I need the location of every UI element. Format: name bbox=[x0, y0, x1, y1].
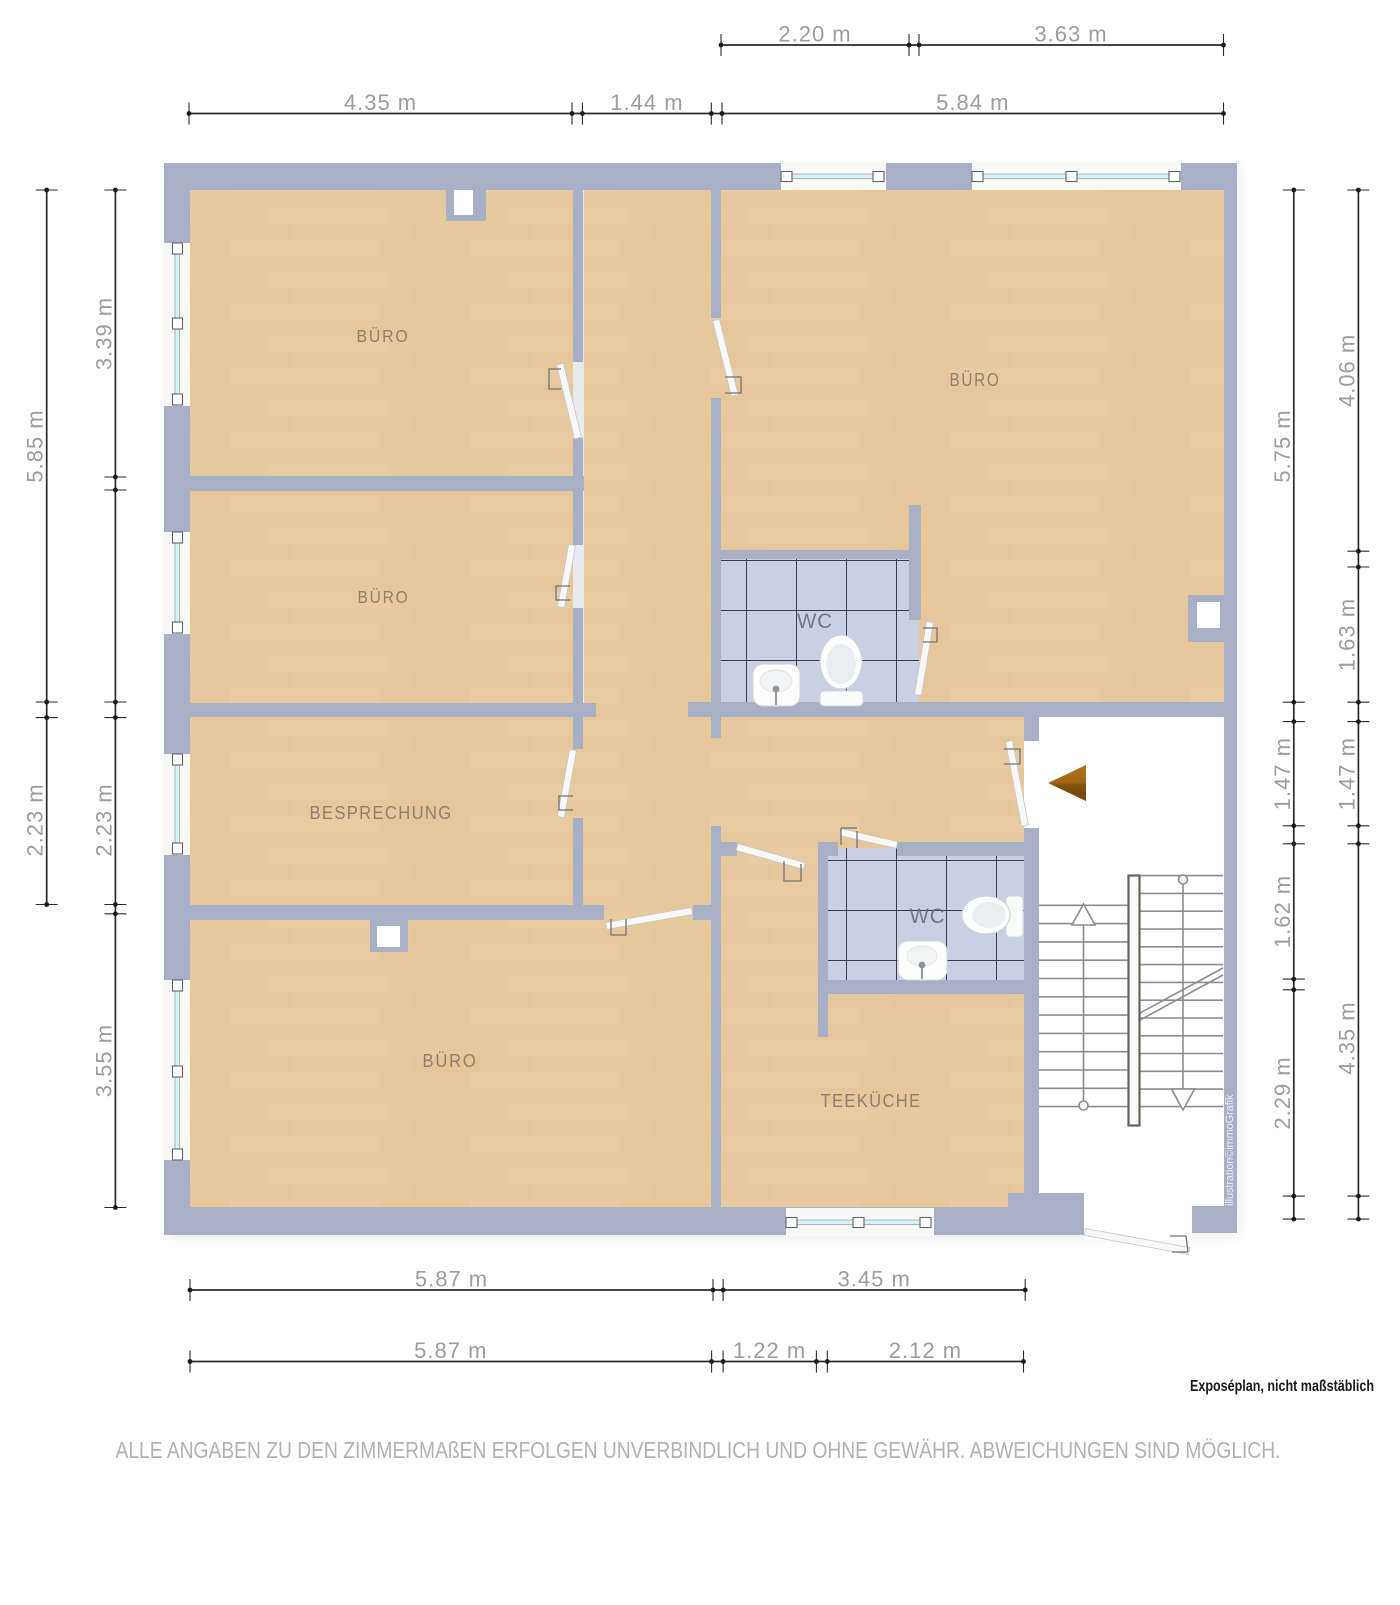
svg-text:2.29 m: 2.29 m bbox=[1270, 1056, 1295, 1129]
svg-text:4.06 m: 4.06 m bbox=[1334, 334, 1359, 407]
svg-text:Exposéplan, nicht maßstäblich: Exposéplan, nicht maßstäblich bbox=[1190, 1378, 1374, 1395]
svg-text:illustration©immoGrafik: illustration©immoGrafik bbox=[1224, 1094, 1236, 1206]
svg-text:2.20 m: 2.20 m bbox=[778, 22, 851, 47]
svg-text:ALLE ANGABEN ZU DEN ZIMMERMAßE: ALLE ANGABEN ZU DEN ZIMMERMAßEN ERFOLGEN… bbox=[116, 1437, 1281, 1463]
svg-text:5.87 m: 5.87 m bbox=[414, 1338, 487, 1363]
svg-text:4.35 m: 4.35 m bbox=[344, 90, 417, 115]
svg-text:5.87 m: 5.87 m bbox=[415, 1267, 488, 1292]
svg-text:4.35 m: 4.35 m bbox=[1334, 1001, 1359, 1074]
svg-text:WC: WC bbox=[910, 905, 946, 928]
svg-text:1.63 m: 1.63 m bbox=[1334, 598, 1359, 671]
svg-text:3.55 m: 3.55 m bbox=[91, 1024, 116, 1097]
svg-text:BÜRO: BÜRO bbox=[950, 370, 1001, 390]
svg-text:5.85 m: 5.85 m bbox=[23, 409, 48, 482]
svg-text:1.62 m: 1.62 m bbox=[1270, 875, 1295, 948]
svg-text:3.39 m: 3.39 m bbox=[91, 297, 116, 370]
svg-text:BÜRO: BÜRO bbox=[357, 326, 410, 346]
svg-text:5.75 m: 5.75 m bbox=[1270, 409, 1295, 482]
svg-text:1.47 m: 1.47 m bbox=[1270, 737, 1295, 810]
svg-text:2.12 m: 2.12 m bbox=[889, 1338, 962, 1363]
svg-text:3.45 m: 3.45 m bbox=[838, 1267, 911, 1292]
svg-text:BÜRO: BÜRO bbox=[423, 1050, 478, 1071]
svg-text:1.47 m: 1.47 m bbox=[1334, 737, 1359, 810]
svg-text:1.22 m: 1.22 m bbox=[733, 1338, 806, 1363]
svg-text:WC: WC bbox=[797, 610, 833, 633]
svg-text:5.84 m: 5.84 m bbox=[936, 90, 1009, 115]
svg-text:BESPRECHUNG: BESPRECHUNG bbox=[310, 802, 453, 823]
svg-text:2.23 m: 2.23 m bbox=[23, 783, 48, 856]
svg-text:BÜRO: BÜRO bbox=[358, 587, 410, 607]
svg-text:1.44 m: 1.44 m bbox=[610, 90, 683, 115]
svg-text:2.23 m: 2.23 m bbox=[91, 783, 116, 856]
svg-text:3.63 m: 3.63 m bbox=[1034, 22, 1107, 47]
svg-text:TEEKÜCHE: TEEKÜCHE bbox=[821, 1090, 922, 1111]
